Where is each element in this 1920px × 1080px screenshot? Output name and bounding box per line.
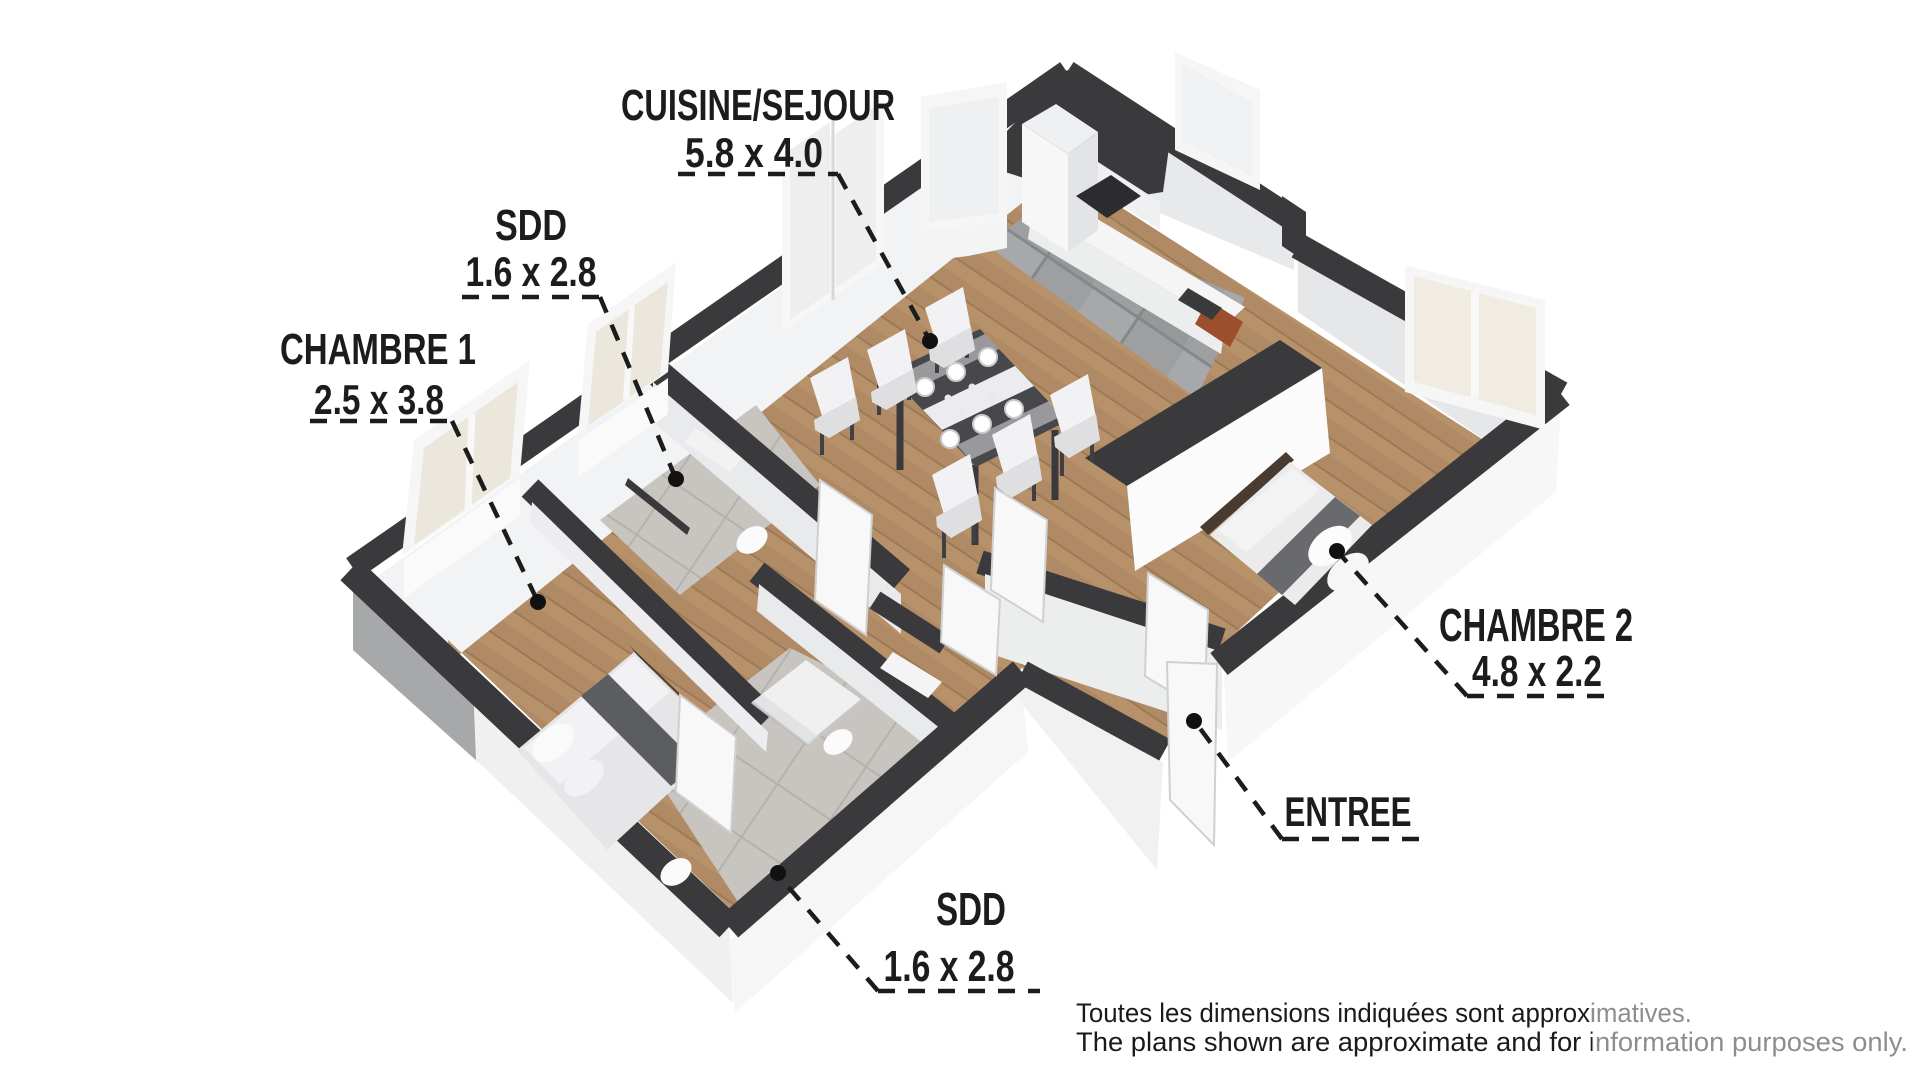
svg-text:ENTREE: ENTREE <box>1285 788 1412 835</box>
svg-text:1.6 x 2.8: 1.6 x 2.8 <box>466 248 597 295</box>
svg-text:CUISINE/SEJOUR: CUISINE/SEJOUR <box>621 81 895 130</box>
svg-text:SDD: SDD <box>495 201 567 250</box>
svg-text:5.8 x 4.0: 5.8 x 4.0 <box>685 129 823 176</box>
svg-text:SDD: SDD <box>936 883 1006 935</box>
svg-text:CHAMBRE 1: CHAMBRE 1 <box>280 325 476 374</box>
svg-text:4.8 x 2.2: 4.8 x 2.2 <box>1472 647 1602 696</box>
svg-text:CHAMBRE 2: CHAMBRE 2 <box>1439 599 1633 651</box>
svg-text:1.6 x 2.8: 1.6 x 2.8 <box>884 942 1015 991</box>
svg-text:2.5 x 3.8: 2.5 x 3.8 <box>314 376 444 423</box>
